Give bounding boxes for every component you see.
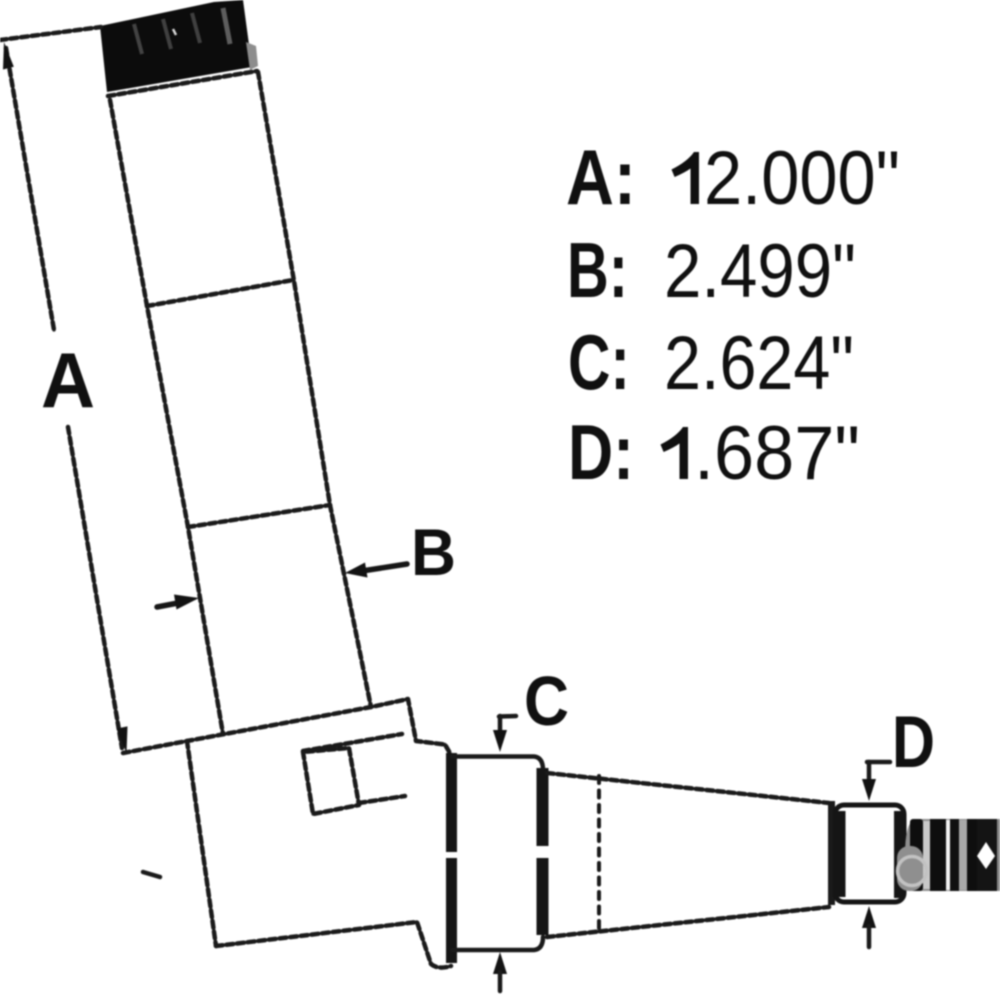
svg-text:2.000": 2.000" <box>704 136 900 221</box>
svg-text:A: A <box>41 336 95 424</box>
svg-text:A:: A: <box>566 133 636 221</box>
svg-text:2.499": 2.499" <box>664 229 856 314</box>
svg-text:C:: C: <box>568 318 630 406</box>
svg-text:B: B <box>411 515 456 589</box>
svg-text:D: D <box>892 702 935 783</box>
svg-text:B:: B: <box>567 226 628 314</box>
svg-text:C: C <box>524 662 569 740</box>
svg-text:2.624": 2.624" <box>664 321 854 406</box>
svg-text:D:: D: <box>568 408 634 496</box>
svg-text:.687": .687" <box>694 411 860 496</box>
